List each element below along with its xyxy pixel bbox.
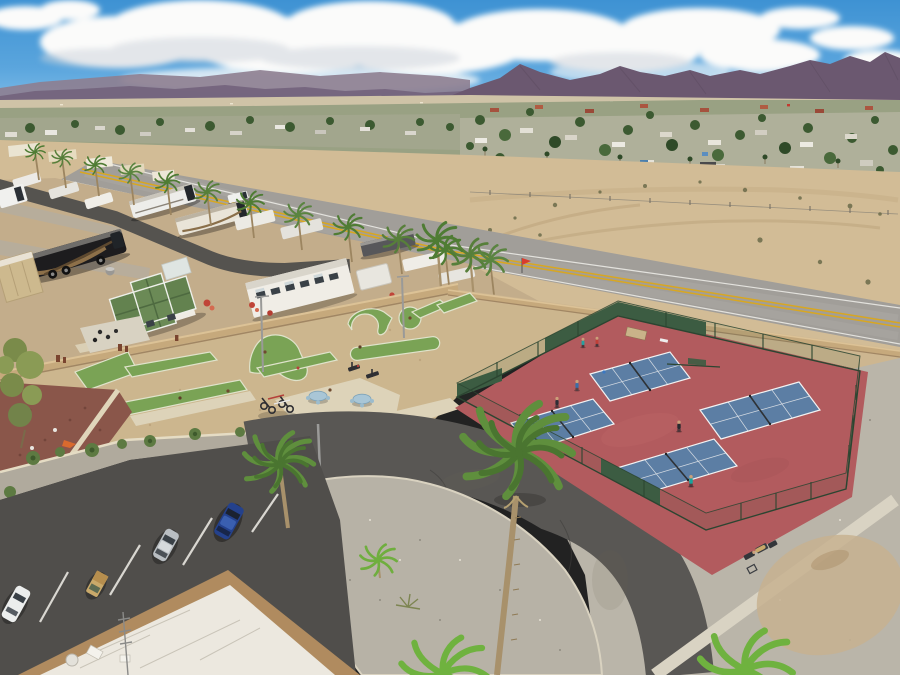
roof-vent-disc [66, 654, 78, 666]
gear-bag [602, 370, 605, 373]
roof-box [120, 655, 130, 662]
bird-sculpture [30, 446, 34, 450]
bird-sculpture [53, 428, 57, 432]
aerial-photo [0, 0, 900, 675]
trash-bin [106, 267, 115, 276]
